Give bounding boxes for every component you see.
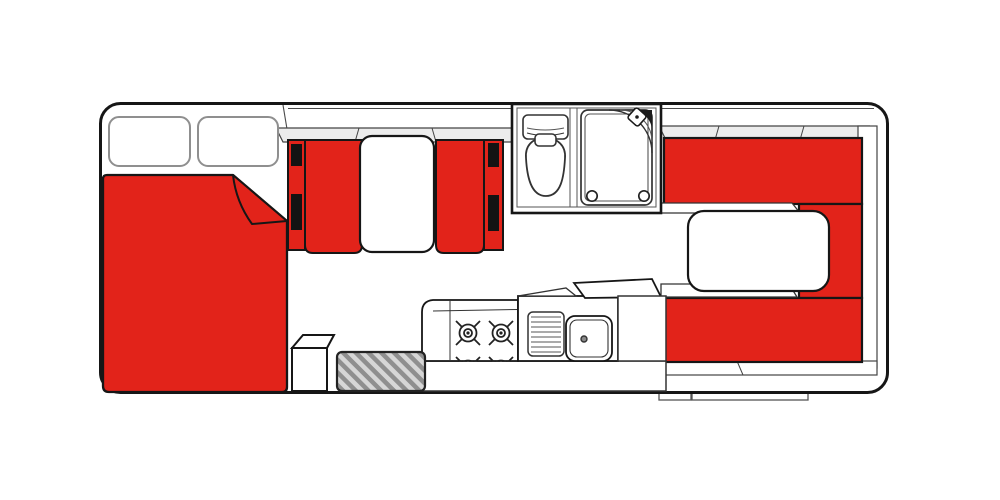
motorhome-floorplan <box>0 0 1000 500</box>
angled-counter <box>574 279 661 298</box>
stove-burner-icon <box>489 321 513 345</box>
dinette-seat-cushion-right <box>436 140 484 253</box>
shower-head-nozzle <box>635 115 639 119</box>
stove-burner-icon <box>456 321 480 345</box>
floorplan-canvas <box>0 0 1000 500</box>
rear-lounge-table <box>688 211 829 291</box>
dinette-table <box>360 136 434 252</box>
shower-cubicle <box>581 107 652 205</box>
toilet-lid-latch <box>535 134 556 146</box>
entry-step-box <box>292 348 327 391</box>
sink-basin-inner <box>570 320 608 357</box>
bed-pillow-right <box>198 117 278 166</box>
bed-pillow-left <box>109 117 190 166</box>
sink-drainboard <box>528 312 564 356</box>
bathroom <box>512 104 661 213</box>
entry-door-mat <box>337 352 425 391</box>
seatbelt-icon <box>291 144 302 166</box>
rear-lounge-seat-bottom <box>664 298 862 362</box>
dinette-seat-cushion-left <box>305 140 362 253</box>
shower-drain-cap <box>587 191 597 201</box>
kitchen-cabinet <box>618 296 666 361</box>
rear-lounge-seat-top <box>664 138 862 204</box>
sink-tap-icon <box>581 336 587 342</box>
kitchen-kickboard <box>420 361 666 391</box>
seatbelt-icon <box>291 194 302 230</box>
seatbelt-icon <box>488 143 499 167</box>
bathroom-divider-wall <box>570 108 577 207</box>
shower-drain-cap <box>639 191 649 201</box>
seatbelt-icon <box>488 195 499 231</box>
front-dinette <box>276 128 517 253</box>
rear-backboard-bottom <box>648 361 877 375</box>
